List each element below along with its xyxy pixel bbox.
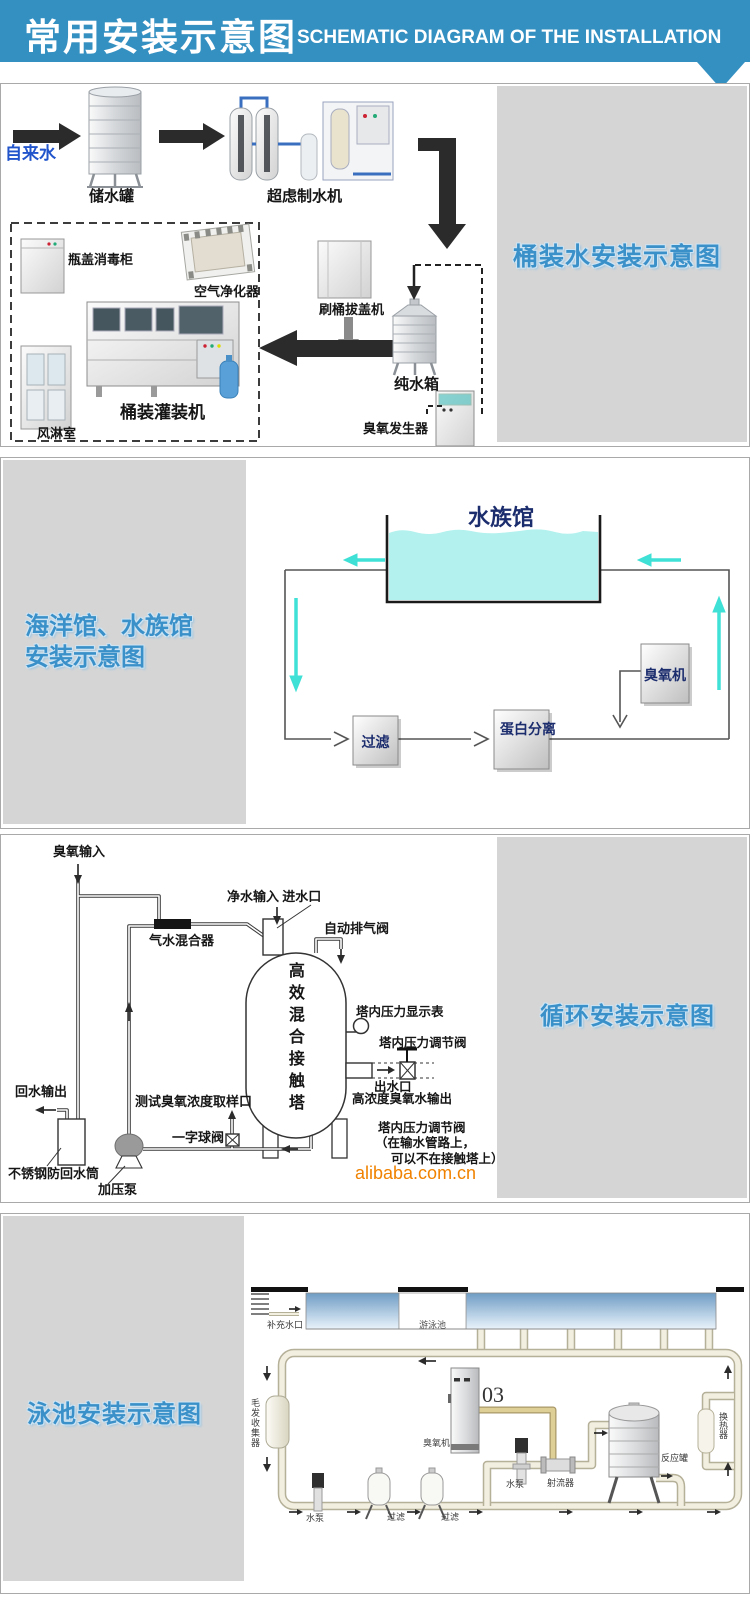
label-supply-inlet: 补充水口 [267, 1318, 303, 1331]
label-pure-water-tank: 纯水箱 [394, 377, 439, 394]
anti-backflow-figure [47, 1119, 85, 1166]
label-o3: 03 [482, 1382, 504, 1408]
supply-inlet-figure [251, 1294, 299, 1314]
uf-machine-figure [230, 98, 393, 180]
label-air-purifier: 空气净化器 [194, 285, 259, 300]
storage-tank-figure [87, 87, 143, 187]
label-ozone-water-output: 高浓度臭氧水输出 [352, 1092, 452, 1106]
label-filter-box: 过滤 [353, 732, 398, 752]
label-tap-water: 自来水 [5, 144, 56, 163]
alibaba-watermark: alibaba.com.cn [355, 1163, 476, 1184]
label-brush-decap: 刷桶拔盖机 [319, 303, 384, 318]
label-reaction-tank: 反应罐 [661, 1451, 688, 1464]
label-pressure-valve: 塔内压力调节阀 [379, 1036, 467, 1050]
schematic-poster: 常用安装示意图 SCHEMATIC DIAGRAM OF THE INSTALL… [0, 0, 750, 1614]
label-ozone-generator: 臭氧发生器 [363, 422, 428, 437]
label-gas-water-mixer: 气水混合器 [149, 934, 214, 949]
air-purifier-figure [181, 224, 254, 280]
label-ozone-input: 臭氧输入 [53, 845, 105, 860]
label-filter-2: 过滤 [441, 1510, 459, 1523]
cap-sterilizer-figure [21, 239, 64, 293]
arrow-uf-down [418, 138, 466, 249]
label-storage-tank: 储水罐 [89, 189, 134, 206]
label-protein-separation: 蛋白分离 [500, 720, 544, 739]
pump-left-figure [312, 1473, 324, 1511]
pressure-pump-figure [108, 1134, 143, 1184]
pure-water-tank-figure [393, 299, 436, 375]
water-inlet-stub [263, 919, 283, 955]
label-filter-1: 过滤 [387, 1510, 405, 1523]
filling-machine-figure [87, 302, 239, 398]
label-uf-machine: 超虑制水机 [267, 189, 342, 206]
label-filling-machine: 桶装灌装机 [120, 403, 205, 422]
brush-decap-machine-figure [318, 241, 371, 356]
label-return-water: 回水输出 [15, 1085, 67, 1100]
label-heat-exchanger: 换热器 [717, 1412, 730, 1452]
label-sampling-port: 测试臭氧浓度取样口 [135, 1095, 252, 1110]
section-circulation: 循环安装示意图 [0, 834, 750, 1203]
label-pressure-pump: 加压泵 [98, 1183, 137, 1198]
header-title-zh: 常用安装示意图 [24, 7, 297, 61]
label-pump-left: 水泵 [306, 1511, 324, 1524]
reaction-tank-figure [609, 1403, 659, 1503]
label-hair-collector: 毛发收集器 [249, 1398, 262, 1458]
label-contact-tower: 高效混合接触塔 [285, 962, 303, 1128]
label-swimming-pool: 游泳池 [399, 1318, 466, 1331]
label-aquarium: 水族馆 [441, 500, 561, 532]
label-air-shower: 风淋室 [37, 427, 76, 442]
section-swimming-pool: 泳池安装示意图 [0, 1213, 750, 1594]
outlet-and-valve-figure [346, 1049, 434, 1079]
tower-leg-right [332, 1119, 347, 1158]
arrow-tank-to-uf [159, 123, 225, 150]
air-shower-figure [21, 346, 71, 429]
label-pressure-gauge: 塔内压力显示表 [356, 1005, 444, 1019]
heat-exchanger-figure [698, 1409, 714, 1453]
gas-water-mixer-figure [154, 919, 191, 929]
ozone-generator-figure [436, 391, 474, 446]
label-ozone-machine-pool: 臭氧机 [423, 1436, 450, 1449]
section2-diagram [1, 458, 750, 828]
ozone-tan-pipe [479, 1410, 553, 1461]
section-bottled-water: 桶装水安装示意图 [0, 83, 750, 447]
section-aquarium: 海洋馆、水族馆 安装示意图 [0, 457, 750, 829]
label-valve-note-2: （在输水管路上， [375, 1136, 475, 1150]
label-pump-mid: 水泵 [506, 1477, 524, 1490]
inlet-pointer-line [277, 905, 311, 928]
header-bar: 常用安装示意图 SCHEMATIC DIAGRAM OF THE INSTALL… [0, 0, 750, 62]
hair-collector-figure [266, 1396, 289, 1448]
label-cap-sterilizer: 瓶盖消毒柜 [68, 253, 133, 268]
pressure-gauge-figure [346, 1019, 369, 1034]
header-title-en: SCHEMATIC DIAGRAM OF THE INSTALLATION [297, 27, 721, 49]
process-boxes [353, 644, 692, 772]
pool-figure [251, 1287, 744, 1329]
section4-diagram [1, 1214, 750, 1593]
ozone-cabinet-figure [448, 1368, 479, 1453]
injector-figure [541, 1457, 575, 1473]
label-auto-exhaust-valve: 自动排气阀 [324, 922, 389, 937]
label-ozone-machine-box: 臭氧机 [641, 665, 689, 685]
label-clean-water-input: 净水输入 进水口 [227, 890, 321, 905]
label-ball-valve: 一字球阀 [172, 1131, 224, 1146]
label-valve-note-1: 塔内压力调节阀 [378, 1121, 466, 1135]
label-anti-backflow: 不锈钢防回水筒 [8, 1167, 99, 1182]
label-injector: 射流器 [547, 1476, 574, 1489]
